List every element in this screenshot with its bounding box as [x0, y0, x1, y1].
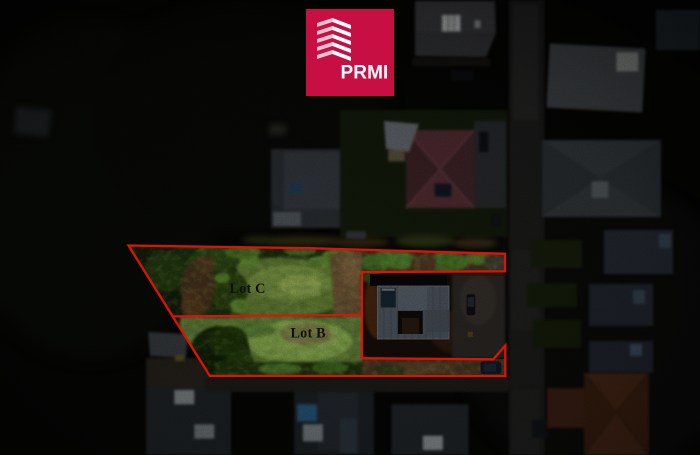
svg-text:PRMI: PRMI — [341, 62, 389, 83]
svg-text:Lot C: Lot C — [230, 281, 266, 297]
svg-text:Lot B: Lot B — [291, 326, 327, 342]
